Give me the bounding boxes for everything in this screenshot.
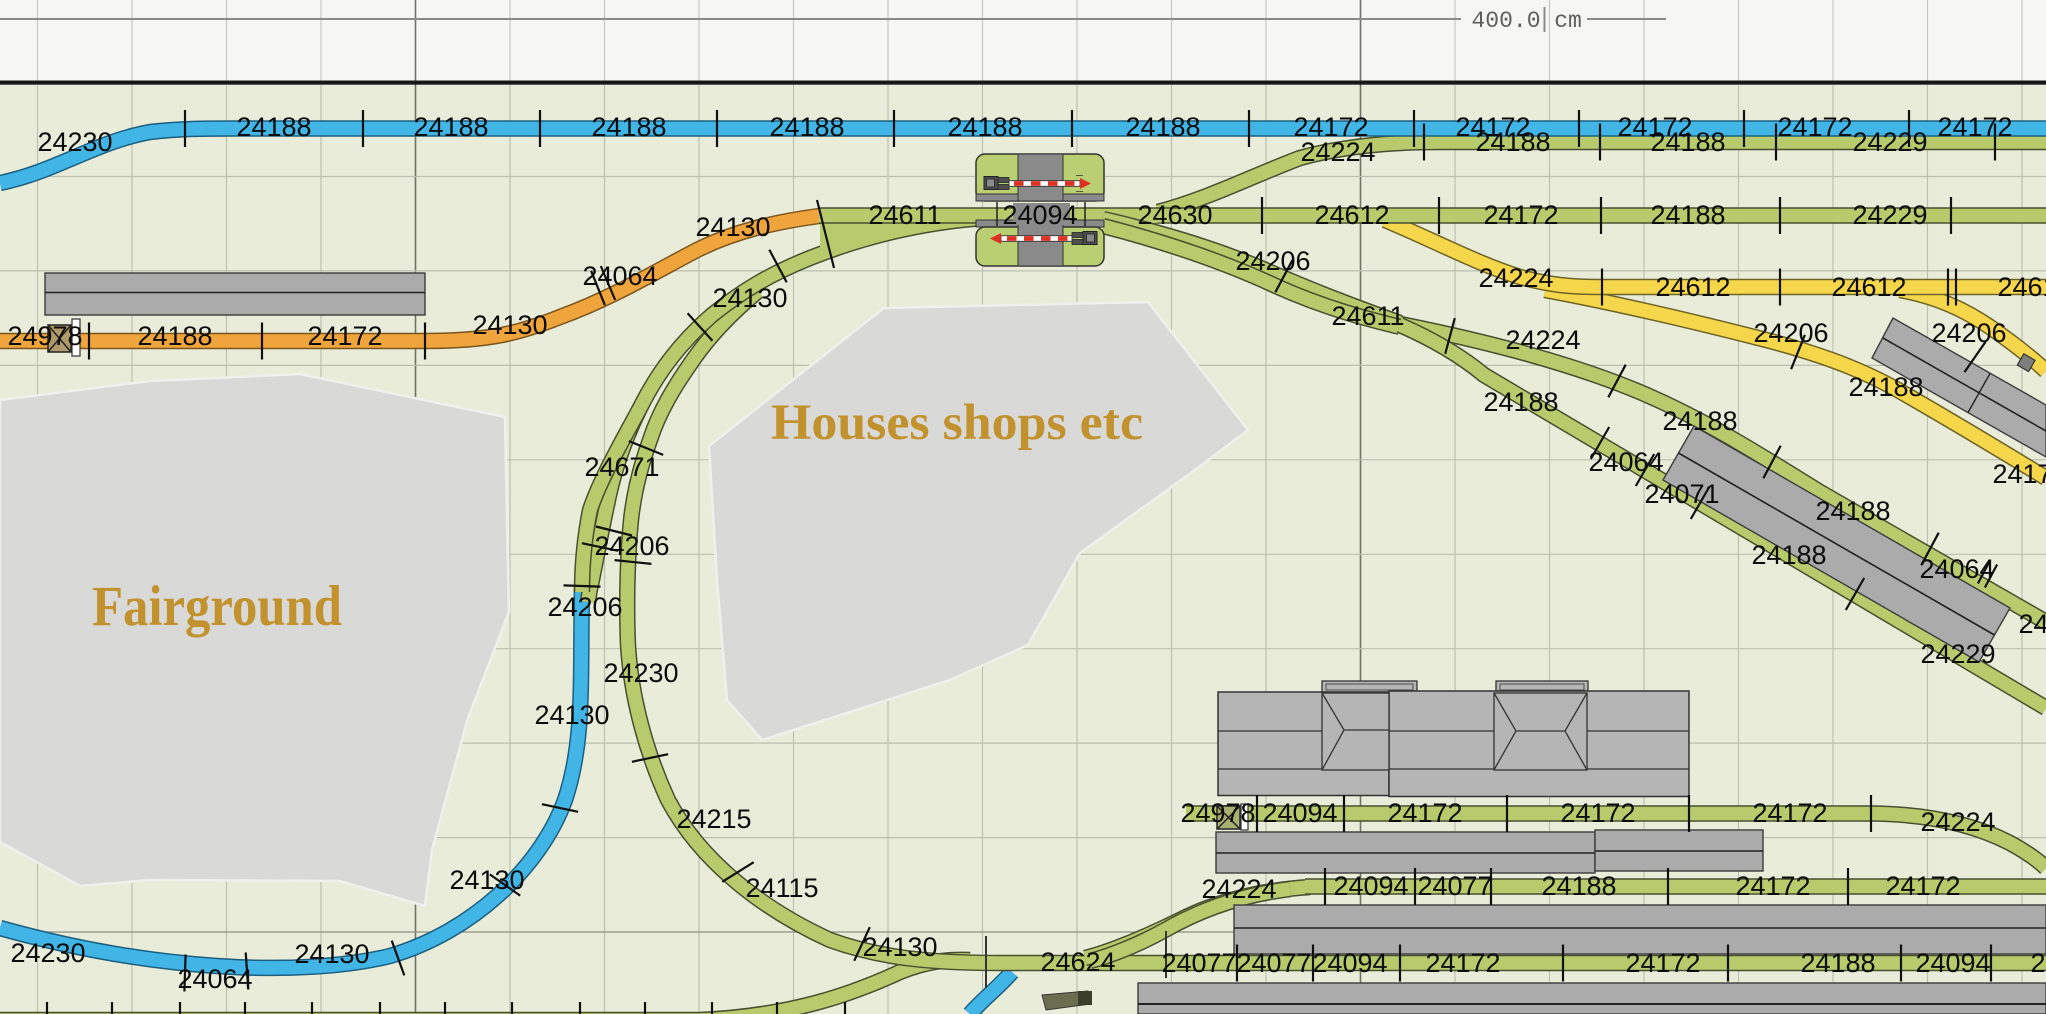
svg-text:24064: 24064: [1588, 447, 1663, 477]
svg-text:24224: 24224: [1201, 874, 1276, 904]
svg-text:24229: 24229: [1852, 127, 1927, 157]
svg-text:24115: 24115: [745, 873, 818, 903]
svg-text:24188: 24188: [1475, 127, 1550, 157]
svg-text:24172: 24172: [1387, 798, 1462, 828]
svg-text:24206: 24206: [1753, 318, 1828, 348]
svg-text:24612: 24612: [1655, 272, 1730, 302]
svg-text:24172: 24172: [1625, 948, 1700, 978]
svg-text:24094: 24094: [1915, 948, 1990, 978]
svg-text:24130: 24130: [862, 932, 937, 962]
svg-text:24612: 24612: [1831, 272, 1906, 302]
svg-text:24188: 24188: [1541, 871, 1616, 901]
svg-text:24188: 24188: [1650, 127, 1725, 157]
svg-text:24206: 24206: [1931, 318, 2006, 348]
svg-text:24224: 24224: [1920, 807, 1995, 837]
svg-text:400.0: 400.0: [1471, 8, 1540, 34]
svg-text:24172: 24172: [1560, 798, 1635, 828]
svg-text:24188: 24188: [1650, 200, 1725, 230]
svg-text:24064: 24064: [177, 964, 252, 994]
svg-text:24188: 24188: [769, 112, 844, 142]
svg-text:24978: 24978: [1180, 798, 1255, 828]
svg-text:24188: 24188: [1125, 112, 1200, 142]
svg-text:24230: 24230: [37, 127, 112, 157]
svg-text:24094: 24094: [1333, 871, 1408, 901]
svg-text:24064: 24064: [1919, 554, 1994, 584]
svg-text:24612: 24612: [1314, 200, 1389, 230]
svg-text:24172: 24172: [1992, 459, 2046, 489]
svg-text:24094: 24094: [1002, 200, 1077, 230]
svg-text:24172: 24172: [1885, 871, 1960, 901]
svg-text:cm: cm: [1554, 8, 1582, 34]
svg-text:24188: 24188: [137, 321, 212, 351]
svg-text:24077: 24077: [1417, 871, 1492, 901]
svg-text:24224: 24224: [1300, 137, 1375, 167]
svg-text:24188: 24188: [947, 112, 1022, 142]
svg-text:24188: 24188: [591, 112, 666, 142]
svg-text:24130: 24130: [472, 310, 547, 340]
svg-text:24130: 24130: [712, 283, 787, 313]
svg-text:24172: 24172: [307, 321, 382, 351]
svg-text:24978: 24978: [7, 321, 82, 351]
svg-text:24077: 24077: [1236, 948, 1311, 978]
svg-text:24206: 24206: [594, 531, 669, 561]
svg-text:24229: 24229: [1852, 200, 1927, 230]
svg-text:Houses shops etc: Houses shops etc: [771, 395, 1143, 451]
svg-text:24130: 24130: [534, 700, 609, 730]
svg-text:Fairground: Fairground: [92, 575, 342, 638]
svg-text:24172: 24172: [1777, 112, 1852, 142]
svg-text:24094: 24094: [1312, 948, 1387, 978]
svg-text:24188: 24188: [1815, 496, 1890, 526]
svg-text:24130: 24130: [695, 212, 770, 242]
svg-text:24130: 24130: [294, 939, 369, 969]
svg-text:24224: 24224: [1505, 325, 1580, 355]
svg-text:24172: 24172: [1425, 948, 1500, 978]
svg-text:24624: 24624: [1040, 947, 1115, 977]
svg-text:24188: 24188: [1848, 372, 1923, 402]
svg-text:24172: 24172: [1937, 112, 2012, 142]
svg-text:24611: 24611: [868, 200, 941, 230]
svg-text:24611: 24611: [1331, 301, 1404, 331]
svg-text:24064: 24064: [582, 261, 657, 291]
svg-text:24188: 24188: [1483, 387, 1558, 417]
svg-text:24206: 24206: [1235, 246, 1310, 276]
svg-text:24224: 24224: [1478, 263, 1553, 293]
svg-text:24230: 24230: [10, 938, 85, 968]
svg-text:24172: 24172: [2030, 948, 2046, 978]
svg-text:24206: 24206: [547, 592, 622, 622]
svg-text:24671: 24671: [584, 452, 659, 482]
svg-text:24612: 24612: [1997, 272, 2046, 302]
svg-text:24130: 24130: [449, 865, 524, 895]
svg-text:24172: 24172: [1752, 798, 1827, 828]
svg-text:24077: 24077: [1161, 948, 1236, 978]
svg-text:24188: 24188: [236, 112, 311, 142]
svg-text:24188: 24188: [1800, 948, 1875, 978]
svg-text:24094: 24094: [1262, 798, 1337, 828]
svg-text:24630: 24630: [1137, 200, 1212, 230]
svg-text:24172: 24172: [1735, 871, 1810, 901]
svg-text:24064: 24064: [2018, 609, 2046, 639]
svg-text:24172: 24172: [1483, 200, 1558, 230]
svg-text:24188: 24188: [413, 112, 488, 142]
svg-text:24071: 24071: [1644, 479, 1719, 509]
svg-text:24188: 24188: [1751, 540, 1826, 570]
svg-text:24215: 24215: [676, 804, 751, 834]
svg-text:24229: 24229: [1920, 639, 1995, 669]
svg-text:24188: 24188: [1662, 406, 1737, 436]
svg-text:24230: 24230: [603, 658, 678, 688]
